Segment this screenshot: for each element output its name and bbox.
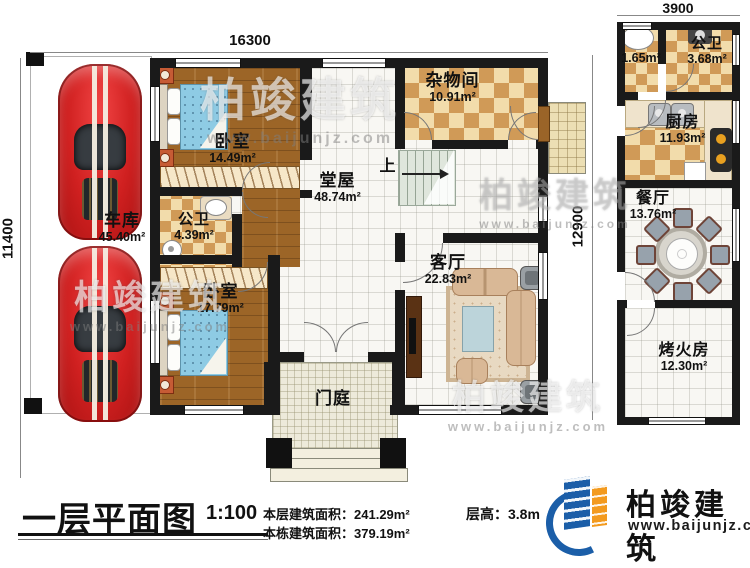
storey-height: 层高：3.8m (466, 504, 540, 524)
garage-column (26, 52, 44, 66)
dining-chair (636, 245, 656, 265)
wall (732, 22, 740, 34)
wall (150, 405, 184, 415)
wall (395, 140, 404, 149)
total-area: 本栋建筑面积：379.19m² (263, 523, 410, 542)
pillow (167, 118, 181, 145)
dining-chair (673, 282, 693, 302)
room-name: 卧室 (185, 133, 280, 152)
wall (268, 352, 304, 362)
room-label-living: 客厅 22.83m² (408, 254, 488, 286)
room-label-dining: 餐厅 13.76m² (618, 190, 688, 221)
room-area: 12.30m² (644, 360, 724, 374)
wall (443, 233, 548, 243)
room-area: 1.65m² (616, 52, 666, 66)
room-label-hall: 堂屋 48.74m² (295, 172, 380, 204)
brand-url: www.baijunjz.com (628, 518, 750, 534)
side-terrace (548, 102, 586, 174)
window (418, 405, 502, 415)
floorplan-page: { "plan": { "dimensions": { "top_main": … (0, 0, 750, 551)
dishwasher (684, 162, 706, 181)
window (322, 58, 386, 68)
room-label-bedroom1: 卧室 14.49m² (185, 133, 280, 165)
total-area-value: 379.19m² (354, 526, 410, 541)
garage-column (24, 398, 42, 414)
window (175, 58, 241, 68)
dimension-label: 16300 (215, 32, 285, 49)
room-label-washroom: 1.65m² (616, 52, 666, 66)
tv (409, 318, 416, 354)
storey-height-label: 层高： (466, 506, 508, 522)
room-name: 杂物间 (405, 72, 500, 91)
wall (617, 417, 648, 425)
room-name: 客厅 (408, 254, 488, 273)
window (622, 22, 652, 30)
room-name: 堂屋 (295, 172, 380, 191)
room-name: 烤火房 (644, 342, 724, 360)
storey-height-value: 3.8m (508, 506, 540, 522)
wall (392, 362, 404, 412)
wall (150, 255, 238, 264)
window (150, 300, 160, 364)
window (648, 417, 706, 425)
stairs-up-text: 上 (378, 158, 398, 176)
porch-step (270, 468, 408, 482)
room-area: 14.49m² (185, 152, 280, 166)
room-label-porch: 门庭 (288, 390, 378, 409)
room-name: 公卫 (678, 36, 736, 53)
drawing-scale: 1:100 (206, 502, 257, 525)
room-label-fire: 烤火房 12.30m² (644, 342, 724, 373)
wall (150, 58, 160, 86)
sofa (506, 290, 536, 366)
wall (150, 187, 242, 196)
terrace-door-sill (538, 106, 550, 142)
title-underline (18, 533, 268, 536)
room-label-bath1: 公卫 4.39m² (158, 212, 230, 242)
room-area: 11.93m² (645, 132, 720, 146)
room-name: 公卫 (158, 212, 230, 229)
dining-chair (710, 245, 730, 265)
stairs-arrow-line (402, 173, 442, 175)
pillow (167, 314, 181, 341)
room-label-storage: 杂物间 10.91m² (405, 72, 500, 104)
wall (232, 187, 242, 195)
room-area: 45.40m² (72, 231, 172, 245)
room-area: 10.91m² (405, 91, 500, 105)
wall (538, 58, 548, 106)
wall (368, 352, 400, 362)
wall (732, 144, 740, 208)
room-name: 厨房 (645, 114, 720, 132)
porch-column (380, 438, 406, 468)
room-label-bath2: 公卫 3.68m² (678, 36, 736, 66)
watermark-url: www.baijunjz.com (408, 419, 648, 434)
wall (300, 58, 312, 160)
room-label-kitchen: 厨房 11.93m² (645, 114, 720, 145)
wall (732, 262, 740, 425)
wall (655, 300, 740, 308)
toilet-dot (168, 246, 174, 252)
room-area: 22.83m² (408, 273, 488, 287)
room-label-garage: 车库 45.40m² (72, 212, 172, 244)
dimension-line (30, 52, 548, 53)
logo-building-blue (564, 476, 590, 530)
dimension-label: 11400 (0, 209, 17, 269)
room-area: 4.39m² (158, 229, 230, 243)
room-name: 卧室 (173, 283, 268, 302)
window (538, 252, 548, 300)
dimension-line (20, 58, 21, 478)
wall (538, 300, 548, 415)
window (732, 208, 740, 262)
wall (666, 92, 740, 100)
room-name: 门庭 (288, 390, 378, 409)
window (150, 86, 160, 142)
total-area-label: 本栋建筑面积： (263, 526, 354, 541)
room-area: 17.79m² (173, 302, 268, 316)
car-top-view (58, 246, 142, 422)
room-area: 13.76m² (618, 208, 688, 222)
wall (617, 180, 740, 188)
room-name: 车库 (72, 212, 172, 231)
dimension-line (592, 55, 593, 420)
wall (617, 92, 638, 100)
window (184, 405, 244, 415)
room-name: 餐厅 (618, 190, 688, 208)
floor-area: 本层建筑面积：241.29m² (263, 504, 410, 523)
dimension-label: 12900 (570, 197, 587, 257)
wall (432, 140, 508, 149)
title-underline-thin (18, 539, 268, 540)
room-area: 48.74m² (295, 191, 380, 205)
wardrobe (160, 166, 300, 189)
stairs-up-label: 上 (378, 158, 398, 176)
car-racing-stripe (92, 248, 108, 420)
porch-column (266, 438, 292, 468)
dining-table-center (677, 249, 687, 259)
wall (706, 417, 740, 425)
floor-area-value: 241.29m² (354, 507, 410, 522)
wall (386, 58, 548, 68)
wall (617, 302, 625, 425)
brand-logo-icon (544, 474, 620, 548)
window (732, 100, 740, 144)
room-area: 3.68m² (678, 53, 736, 67)
dimension-label: 3900 (650, 0, 706, 16)
pillow (167, 344, 181, 371)
stove-burner (716, 154, 726, 164)
room-label-bedroom2: 卧室 17.79m² (173, 283, 268, 315)
armchair (456, 358, 488, 384)
pillow (167, 88, 181, 115)
floor-area-label: 本层建筑面积： (263, 507, 354, 522)
wall (264, 362, 276, 412)
coffee-table (462, 306, 494, 352)
stairs-arrowhead (440, 169, 449, 179)
window (538, 196, 548, 222)
logo-building-orange (592, 485, 607, 527)
